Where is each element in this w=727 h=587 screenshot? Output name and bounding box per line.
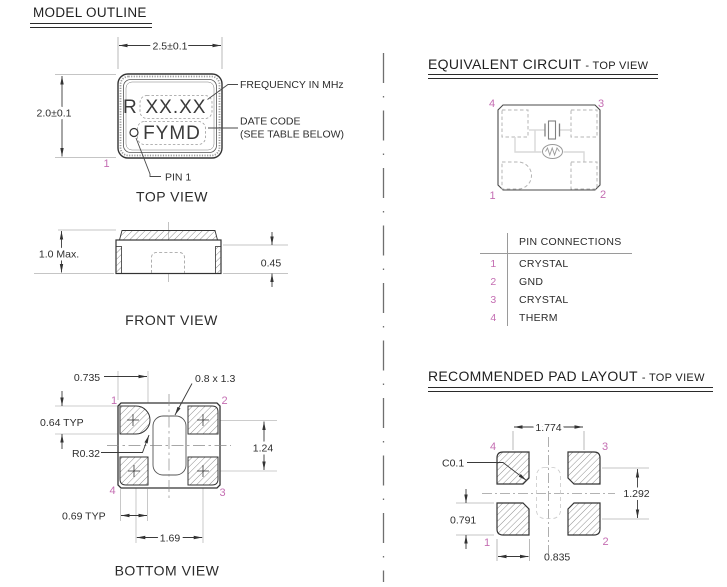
marking-datecode: FYMD xyxy=(143,123,201,144)
pad1-width-dim: 0.735 xyxy=(74,372,100,384)
datecode-callout-line2: (SEE TABLE BELOW) xyxy=(240,129,344,141)
top-view-caption: TOP VIEW xyxy=(136,189,208,205)
layout-pin4-number: 4 xyxy=(490,441,496,453)
layout-pad-1 xyxy=(497,503,529,535)
chamfer-dim: C0.1 xyxy=(442,458,464,470)
corner-radius-dim: R0.32 xyxy=(72,448,100,460)
bottom-view-drawing: 0.735 0.8 x 1.3 0.64 TYP R0.32 1.24 0.69… xyxy=(40,371,277,579)
top-view-width-dim: 2.5±0.1 xyxy=(153,41,188,53)
layout-pin2-number: 2 xyxy=(602,536,608,548)
circuit-pin1-number: 1 xyxy=(489,190,495,202)
castellation-dim: 0.45 xyxy=(261,258,282,270)
circuit-pin2-number: 2 xyxy=(600,189,606,201)
top-view-height-dim: 2.0±0.1 xyxy=(37,108,72,120)
pad-layout-drawing: 1.774 C0.1 1.292 0.791 0.835 4 3 1 2 xyxy=(442,422,650,564)
front-view-lid xyxy=(120,231,218,241)
front-view-right-terminal xyxy=(216,247,222,274)
bottom-view-pin3-number: 3 xyxy=(219,487,225,499)
bottom-view-caption: BOTTOM VIEW xyxy=(115,563,220,579)
circuit-pin4-number: 4 xyxy=(489,98,495,110)
thermistor-symbol xyxy=(543,145,563,159)
layout-pin3-number: 3 xyxy=(602,441,608,453)
pad-height-dim: 0.64 TYP xyxy=(40,417,84,429)
front-view-caption: FRONT VIEW xyxy=(125,312,218,328)
layout-pin1-number: 1 xyxy=(484,537,490,549)
layout-row-pitch-dim: 1.292 xyxy=(623,488,649,500)
layout-pad-height-dim: 0.791 xyxy=(450,515,476,527)
pin1-callout: PIN 1 xyxy=(165,172,191,184)
pin1-dot-marker xyxy=(130,129,138,137)
layout-col-pitch-dim: 1.774 xyxy=(535,422,561,434)
bottom-view-pin4-number: 4 xyxy=(109,485,115,497)
layout-pad-width-dim: 0.835 xyxy=(544,552,570,564)
layout-pad-2 xyxy=(568,503,600,535)
equivalent-circuit-drawing: 4 3 1 2 xyxy=(489,98,606,202)
marking-prefix: R xyxy=(123,97,138,118)
frequency-callout: FREQUENCY IN MHz xyxy=(240,79,344,91)
layout-pad-3 xyxy=(568,452,600,484)
pad-row-pitch-dim: 1.24 xyxy=(253,443,274,455)
bottom-view-pin2-number: 2 xyxy=(221,395,227,407)
front-view-body xyxy=(116,240,221,274)
drawing-canvas: 2.5±0.1 2.0±0.1 R XX.XX FYMD FREQU xyxy=(0,0,727,587)
pad-col-pitch-dim: 1.69 xyxy=(160,533,181,545)
datasheet-page: MODEL OUTLINE EQUIVALENT CIRCUIT - TOP V… xyxy=(0,0,727,587)
circuit-pin3-number: 3 xyxy=(598,98,604,110)
top-view-pin1-number: 1 xyxy=(103,158,109,170)
marking-frequency: XX.XX xyxy=(146,97,207,118)
front-view-left-terminal xyxy=(116,247,122,274)
top-view-drawing: 2.5±0.1 2.0±0.1 R XX.XX FYMD FREQU xyxy=(37,37,345,205)
slot-dim: 0.8 x 1.3 xyxy=(195,373,235,385)
front-view-drawing: 1.0 Max. 0.45 FRONT VIEW xyxy=(34,222,288,328)
front-view-height-dim: 1.0 Max. xyxy=(39,249,79,261)
pad-width-dim: 0.69 TYP xyxy=(62,511,106,523)
datecode-callout-line1: DATE CODE xyxy=(240,116,300,128)
bottom-view-pin1-number: 1 xyxy=(111,395,117,407)
